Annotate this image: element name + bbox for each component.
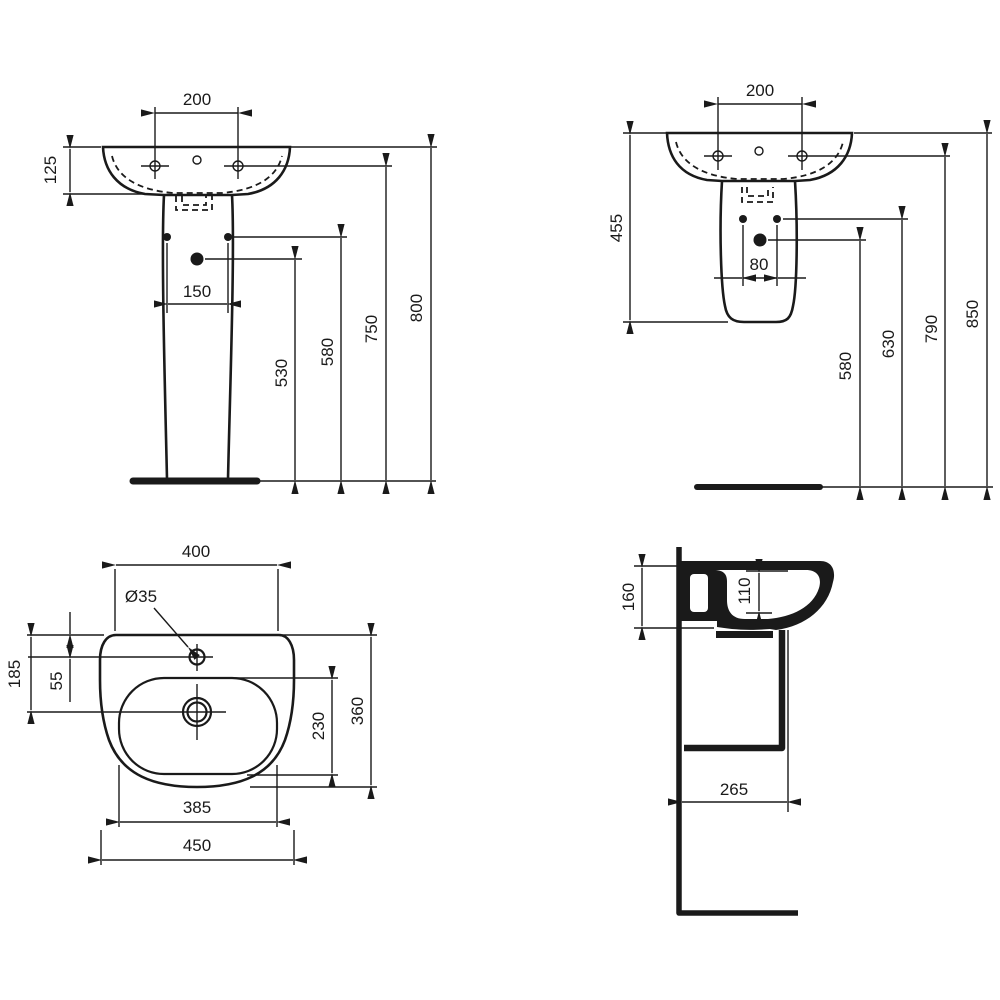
view-front-pedestal: 200 125 150 530 580 xyxy=(41,90,437,481)
dim-label-750: 750 xyxy=(362,315,381,343)
dim-basin-shroud-height: 455 xyxy=(607,133,728,322)
dim-rim-to-underside: 125 xyxy=(41,147,150,194)
drain-hole xyxy=(754,234,767,247)
dim-label-360: 360 xyxy=(348,697,367,725)
dim-label-580: 580 xyxy=(836,352,855,380)
drain-hole xyxy=(191,253,204,266)
bowl-hidden-edge xyxy=(112,156,282,193)
dim-trap-height: 530 xyxy=(272,260,295,480)
dim-label-80: 80 xyxy=(750,255,769,274)
shroud-profile xyxy=(684,630,782,748)
tap-hole-centre xyxy=(193,156,201,164)
dim-label-55: 55 xyxy=(47,672,66,691)
dim-label-630: 630 xyxy=(879,330,898,358)
dim-label-200: 200 xyxy=(183,90,211,109)
dim-label-450: 450 xyxy=(183,836,211,855)
callout-tap-hole-diameter: Ø35 xyxy=(125,587,188,647)
dim-trap-height: 580 xyxy=(836,241,860,486)
dim-rim-height: 800 xyxy=(407,148,431,480)
tap-hole xyxy=(181,644,213,671)
dim-label-160: 160 xyxy=(619,583,638,611)
trap-hidden-inner xyxy=(747,187,768,196)
dim-rim-to-drain: 185 xyxy=(5,635,226,712)
dim-label-385: 385 xyxy=(183,798,211,817)
outlet-flange xyxy=(716,631,773,638)
dim-label-265: 265 xyxy=(720,780,748,799)
dim-fixing-height: 630 xyxy=(879,220,902,486)
dim-label-455: 455 xyxy=(607,214,626,242)
dim-overall-width: 450 xyxy=(101,830,294,865)
dim-rim-height: 850 xyxy=(963,134,987,486)
fixing-hole-right xyxy=(773,215,781,223)
dim-label-d35: Ø35 xyxy=(125,587,157,606)
overflow-slot xyxy=(690,574,708,612)
basin-outline xyxy=(103,147,290,195)
fixing-hole-left xyxy=(163,233,171,241)
dim-label-230: 230 xyxy=(309,712,328,740)
view-side-section: 160 110 265 xyxy=(619,547,834,913)
basin-outline xyxy=(667,133,852,181)
dim-fixing-height: 580 xyxy=(318,238,341,480)
dim-label-110: 110 xyxy=(735,577,754,604)
washbasin-dimension-drawing: 200 125 150 530 580 xyxy=(0,0,1000,1000)
dim-label-400: 400 xyxy=(182,542,210,561)
dim-label-150: 150 xyxy=(183,282,211,301)
dim-label-185: 185 xyxy=(5,660,24,688)
dim-tap-height: 790 xyxy=(922,157,945,486)
dim-shroud-projection: 265 xyxy=(682,630,788,812)
dim-label-800: 800 xyxy=(407,294,426,322)
dim-label-125: 125 xyxy=(41,156,60,184)
fixing-hole-right xyxy=(224,233,232,241)
dim-tap-height: 750 xyxy=(362,167,386,480)
dim-label-200: 200 xyxy=(746,81,774,100)
fixing-hole-left xyxy=(739,215,747,223)
dim-label-790: 790 xyxy=(922,315,941,343)
view-plan: 400 Ø35 185 55 230 xyxy=(5,542,377,865)
tap-hole-centre xyxy=(755,147,763,155)
view-front-semi-pedestal: 200 455 80 580 630 xyxy=(607,81,993,487)
trap-hidden-inner xyxy=(182,196,206,205)
dim-bowl-depth: 230 xyxy=(235,678,338,775)
dim-label-530: 530 xyxy=(272,359,291,387)
technical-drawing-sheet: 200 125 150 530 580 xyxy=(0,0,1000,1000)
dim-label-580: 580 xyxy=(318,338,337,366)
dim-label-850: 850 xyxy=(963,300,982,328)
dim-rim-to-tap: 55 xyxy=(28,612,181,702)
